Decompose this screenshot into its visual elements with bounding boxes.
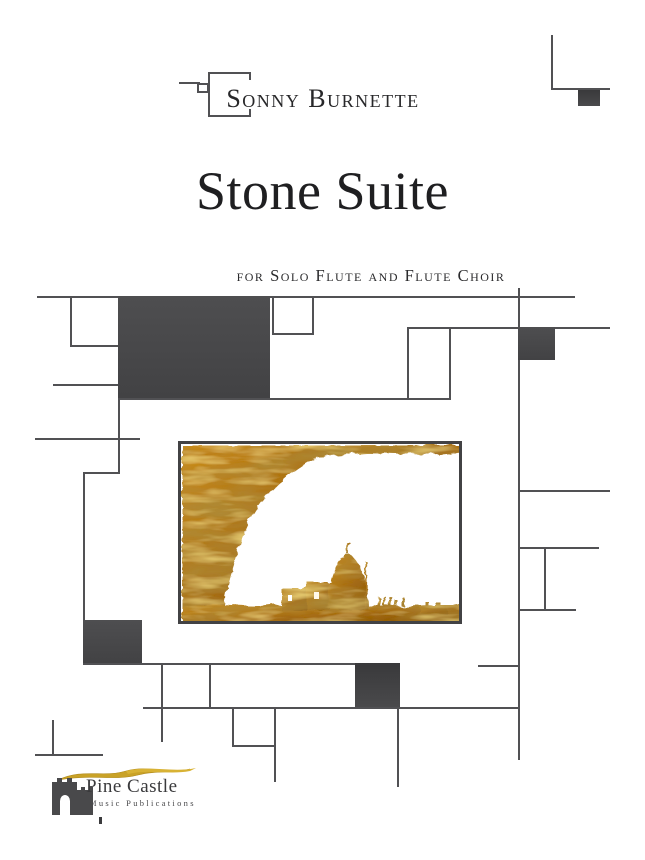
deco-line — [83, 472, 120, 474]
deco-tick — [99, 817, 102, 824]
deco-line — [551, 35, 553, 90]
cover-page: Sonny Burnette Stone Suite for Solo Flut… — [0, 0, 645, 860]
deco-line — [544, 547, 546, 610]
deco-line — [407, 327, 409, 400]
page-subtitle: for Solo Flute and Flute Choir — [210, 266, 532, 286]
deco-line — [52, 720, 54, 756]
deco-line — [397, 708, 399, 787]
deco-dark-square — [578, 90, 600, 106]
deco-line — [518, 609, 576, 611]
deco-square-outline — [70, 296, 120, 347]
deco-bracket-top — [208, 72, 251, 74]
publisher-logo: Pine Castle Music Publications — [48, 762, 248, 817]
deco-line — [35, 754, 103, 756]
deco-line — [118, 398, 451, 400]
deco-dark-rect — [118, 296, 270, 398]
cover-artwork-image — [181, 444, 459, 621]
page-title: Stone Suite — [0, 160, 645, 222]
deco-line — [83, 472, 85, 622]
deco-line — [118, 398, 120, 474]
deco-line — [35, 438, 140, 440]
deco-line — [53, 384, 118, 386]
publisher-name: Pine Castle — [86, 776, 178, 798]
deco-line — [407, 327, 610, 329]
deco-bracket-left — [208, 72, 210, 117]
deco-line — [161, 663, 163, 742]
deco-line — [143, 707, 520, 709]
author-name: Sonny Burnette — [215, 84, 431, 114]
deco-line — [232, 708, 234, 747]
deco-line — [449, 327, 451, 400]
deco-dark-square — [518, 327, 555, 360]
deco-line — [478, 665, 520, 667]
deco-dark-rect — [83, 620, 142, 663]
deco-line — [209, 663, 211, 708]
deco-bracket-bottom — [208, 115, 251, 117]
deco-line — [232, 745, 276, 747]
deco-line — [518, 490, 610, 492]
deco-square-outline — [272, 296, 314, 335]
deco-line — [83, 663, 400, 665]
deco-line — [518, 547, 599, 549]
deco-bracket-stub-top — [249, 72, 251, 80]
deco-line — [274, 708, 276, 782]
publisher-tagline: Music Publications — [89, 798, 196, 808]
deco-dark-square — [355, 663, 400, 708]
cover-artwork — [178, 441, 462, 624]
